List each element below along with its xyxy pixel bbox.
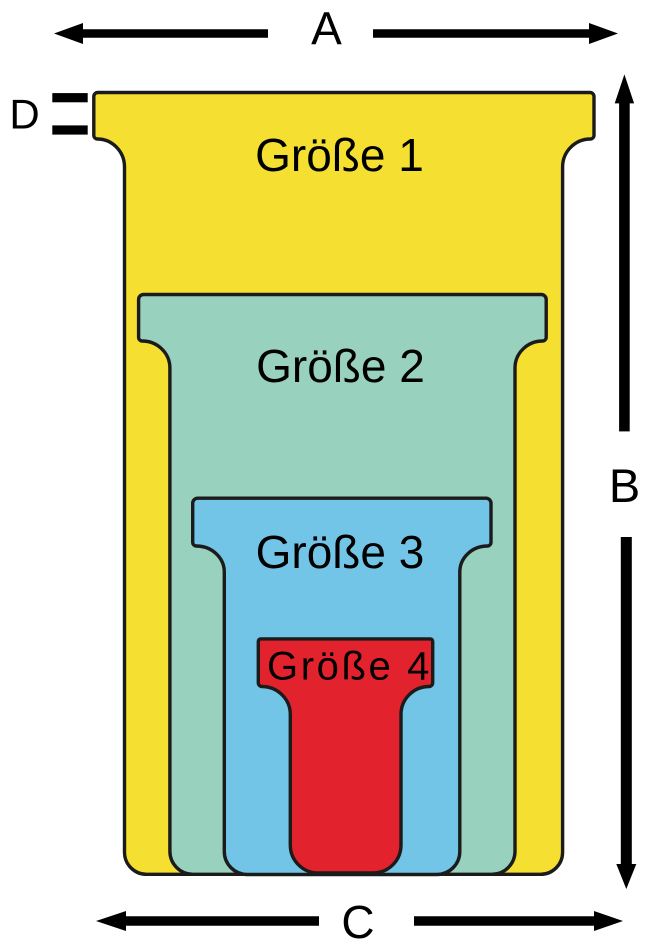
svg-text:Größe 3: Größe 3 <box>256 526 425 578</box>
svg-text:Größe 4: Größe 4 <box>267 645 432 689</box>
svg-text:Größe 1: Größe 1 <box>255 129 424 181</box>
svg-text:D: D <box>9 91 39 138</box>
svg-text:A: A <box>311 2 342 54</box>
svg-text:Größe 2: Größe 2 <box>256 340 425 392</box>
svg-text:B: B <box>609 459 640 512</box>
svg-text:C: C <box>341 896 374 945</box>
